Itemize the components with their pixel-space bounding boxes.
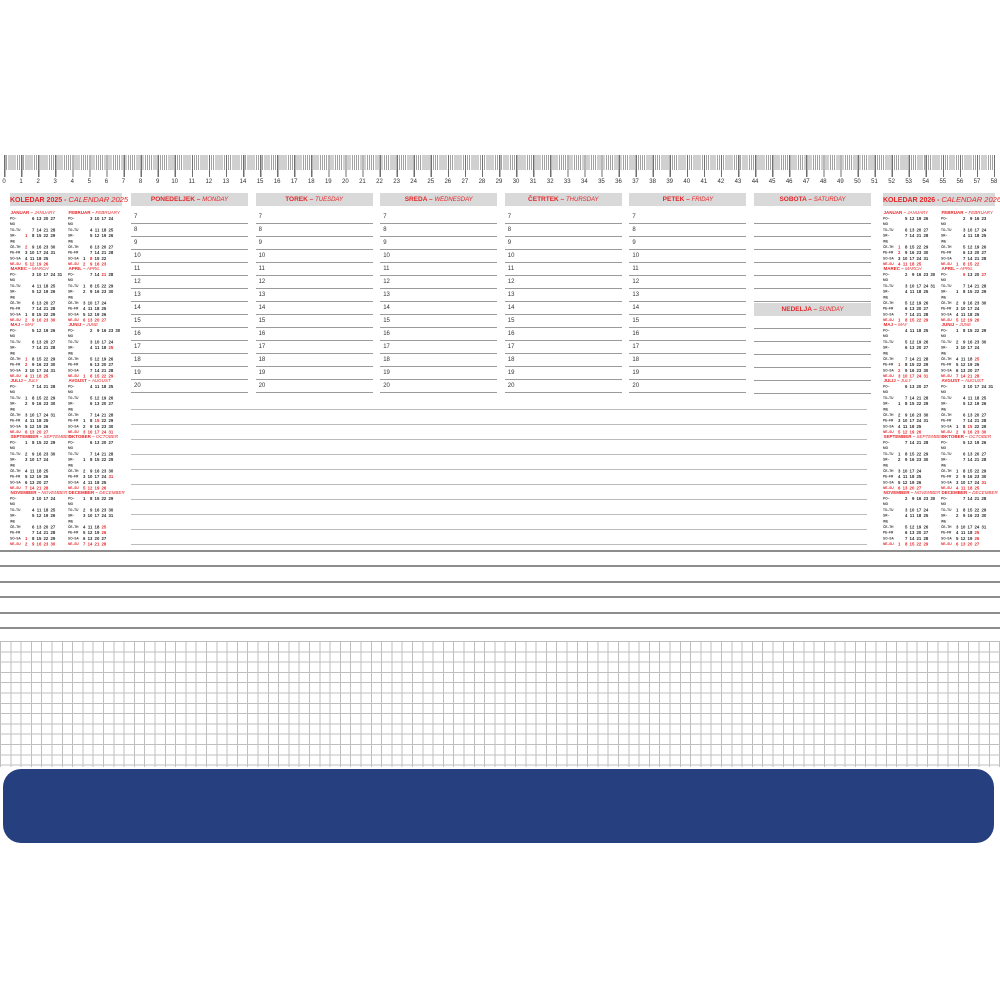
weekday-abbrev: PO–MO (941, 328, 952, 339)
mini-month: AVGUST – AUGUSTPO–MO310172431TO–TU411182… (941, 378, 995, 431)
full-width-lines-area (0, 550, 1000, 630)
blank-slot (754, 381, 871, 394)
date-cell: 29 (49, 233, 56, 244)
month-name-sl: JULIJ (884, 378, 896, 383)
date-cell: 16 (908, 457, 915, 468)
month-grid: PO–MO6132027TO–TU7142128SR–WE18152229ČE–… (68, 440, 122, 491)
hour-slot: 18 (256, 354, 373, 367)
date-cell: 26 (49, 513, 56, 524)
date-cell: 28 (49, 384, 56, 395)
weekday-abbrev: PO–MO (10, 216, 21, 227)
date-cell (21, 272, 28, 283)
hour-slot: 17 (505, 341, 622, 354)
date-cell (79, 233, 86, 244)
day-name-en: THURSDAY (566, 197, 599, 203)
month-name-en: JULY (901, 378, 912, 383)
date-cell (952, 233, 959, 244)
date-cell: 16 (35, 401, 42, 412)
date-cell (894, 216, 901, 227)
date-cell: 28 (980, 457, 987, 468)
date-cell: 7 (959, 496, 966, 507)
date-cell: 2 (79, 289, 86, 300)
date-cell: 7 (901, 440, 908, 451)
date-cell: 20 (915, 345, 922, 356)
date-cell: 8 (28, 233, 35, 244)
date-cell: 17 (973, 384, 980, 395)
month-grid: PO–MO29162330TO–TU310172431SR–WE4111825Č… (883, 272, 937, 323)
month-title: MAREC – MARCH (11, 266, 65, 271)
date-cell: 28 (49, 345, 56, 356)
date-cell: 7 (959, 457, 966, 468)
month-title: JULIJ – JULY (884, 378, 938, 383)
hour-slot: 20 (629, 380, 746, 393)
date-cell (987, 513, 994, 524)
date-cell (929, 345, 936, 356)
date-cell (929, 457, 936, 468)
date-cell: 23 (973, 513, 980, 524)
mini-month-inner: SEPTEMBER – SEPTEMBERPO–MO7142128TO–TU18… (883, 434, 937, 491)
date-cell: 12 (966, 440, 973, 451)
hour-slot: 10 (380, 250, 497, 263)
weekday-abbrev: SR–WE (10, 457, 21, 468)
wide-line (0, 612, 1000, 614)
mini-month-inner: APRIL – APRILPO–MO6132027TO–TU7142128SR–… (941, 266, 995, 323)
mini-month-inner: DECEMBER – DECEMBERPO–MO18152229TO–TU291… (68, 490, 122, 547)
mini-month-inner: OKTOBER – OCTOBERPO–MO5121926TO–TU613202… (941, 434, 995, 491)
date-cell (21, 328, 28, 339)
mini-month: MAJ – MAYPO–MO4111825TO–TU5121926SR–WE61… (883, 322, 937, 375)
desk-pad-calendar: 0123456789101112131415161718192021222324… (0, 0, 1000, 1000)
date-cell (929, 216, 936, 227)
date-cell (21, 513, 28, 524)
month-name-sl: MAREC (11, 266, 28, 271)
ruler-label: 3 (54, 179, 57, 185)
hour-slot: 11 (380, 263, 497, 276)
date-cell (114, 496, 121, 507)
mini-month: APRIL – APRILPO–MO6132027TO–TU7142128SR–… (941, 266, 995, 319)
date-cell (56, 216, 63, 227)
date-cell: 23 (922, 272, 929, 283)
weekday-abbrev: SR–WE (883, 345, 894, 356)
ruler-label: 49 (837, 179, 844, 185)
wide-line (0, 581, 1000, 583)
date-cell (114, 216, 121, 227)
month-title: MAJ – MAY (11, 322, 65, 327)
day-name-en: MONDAY (202, 197, 228, 203)
hour-slot: 15 (629, 315, 746, 328)
weekday-abbrev: SR–WE (883, 401, 894, 412)
year-title-en: CALENDAR 2025 (68, 195, 128, 204)
date-cell: 3 (28, 272, 35, 283)
day-header-dash: – (559, 196, 566, 203)
day-name-sl: ČETRTEK (528, 196, 559, 203)
weekly-planner: PONEDELJEK – MONDAY789101112131415161718… (131, 193, 871, 403)
date-cell: 25 (107, 345, 114, 356)
date-cell: 3 (86, 216, 93, 227)
month-grid: PO–MO3101724TO–TU4111825SR–WE5121926ČE–T… (68, 216, 122, 267)
hour-slots: 7891011121314151617181920 (629, 211, 746, 393)
ruler-label: 17 (291, 179, 298, 185)
ruler-label: 50 (854, 179, 861, 185)
hour-slot: 7 (380, 211, 497, 224)
mini-month: NOVEMBER – NOVEMBERPO–MO3101724TO–TU4111… (10, 490, 64, 543)
mini-month-inner: JANUAR – JANUARYPO–MO6132027TO–TU7142128… (10, 210, 64, 267)
date-cell: 18 (100, 384, 107, 395)
mini-month: MAREC – MARCHPO–MO29162330TO–TU310172431… (883, 266, 937, 319)
hour-slot: 17 (380, 341, 497, 354)
date-cell (21, 289, 28, 300)
blank-slot (754, 368, 871, 381)
date-cell (21, 216, 28, 227)
notes-lines-area (131, 403, 867, 553)
blue-footer-bar (3, 769, 994, 843)
date-cell: 24 (100, 513, 107, 524)
date-cell (114, 542, 121, 548)
date-cell: 30 (49, 401, 56, 412)
hour-slot: 12 (505, 276, 622, 289)
weekday-abbrev: SR–WE (68, 513, 79, 524)
date-cell: 25 (922, 328, 929, 339)
date-cell: 13 (93, 401, 100, 412)
date-cell (929, 513, 936, 524)
day-column-thursday: ČETRTEK – THURSDAY7891011121314151617181… (505, 193, 622, 393)
date-cell: 23 (42, 542, 49, 548)
day-column-wednesday: SREDA – WEDNESDAY78910111213141516171819… (380, 193, 497, 393)
date-cell (107, 542, 114, 548)
date-cell (114, 384, 121, 395)
date-cell: 21 (93, 542, 100, 548)
date-cell (929, 328, 936, 339)
date-cell (987, 401, 994, 412)
date-cell: 20 (100, 401, 107, 412)
date-cell: 3 (21, 457, 28, 468)
hour-slot: 10 (131, 250, 248, 263)
month-grid: PO–MO5121926TO–TU6132027SR–WE7142128ČE–T… (883, 216, 937, 267)
date-cell: 8 (86, 457, 93, 468)
squared-grid-area (0, 641, 1000, 767)
mini-month-inner: JUNIJ – JUNEPO–MO18152229TO–TU29162330SR… (941, 322, 995, 379)
date-cell: 16 (35, 542, 42, 548)
hour-slot: 8 (380, 224, 497, 237)
hour-slot: 13 (629, 289, 746, 302)
hour-slot: 13 (380, 289, 497, 302)
date-cell: 4 (901, 289, 908, 300)
mini-month-inner: AVGUST – AUGUSTPO–MO4111825TO–TU5121926S… (68, 378, 122, 435)
weekday-abbrev: SR–WE (10, 345, 21, 356)
month-grid: PO–MO310172431TO–TU4111825SR–WE5121926ČE… (941, 384, 995, 435)
date-cell (894, 440, 901, 451)
month-name-en: DECEMBER (99, 490, 125, 495)
weekday-abbrev: SR–WE (883, 289, 894, 300)
weekday-abbrev: SR–WE (10, 233, 21, 244)
day-header-sunday: NEDELJA – SUNDAY (754, 303, 871, 316)
month-name-en: MARCH (32, 266, 49, 271)
date-cell (56, 401, 63, 412)
date-cell: 29 (922, 401, 929, 412)
date-cell: 31 (56, 272, 63, 283)
ruler-label: 45 (769, 179, 776, 185)
month-name-en: JUNE (86, 322, 98, 327)
weekday-abbrev: SR–WE (10, 289, 21, 300)
month-title: APRIL – APRIL (942, 266, 996, 271)
month-grid: PO–MO6132027TO–TU7142128SR–WE18152229ČE–… (10, 216, 64, 267)
date-cell (987, 289, 994, 300)
month-title: NOVEMBER – NOVEMBER (884, 490, 938, 495)
date-cell (79, 272, 86, 283)
date-cell: 15 (908, 542, 915, 548)
hour-slot: 11 (256, 263, 373, 276)
month-name-sl: JUNIJ (69, 322, 82, 327)
ruler-label: 16 (274, 179, 281, 185)
weekday-abbrev: PO–MO (941, 216, 952, 227)
hour-slot: 18 (131, 354, 248, 367)
date-cell: 12 (35, 289, 42, 300)
blank-slot (754, 276, 871, 289)
month-name-sl: FEBRUAR (69, 210, 91, 215)
date-cell: 17 (966, 345, 973, 356)
month-name-sl: MAJ (11, 322, 21, 327)
ruler: 0123456789101112131415161718192021222324… (2, 155, 998, 189)
date-cell: 18 (915, 328, 922, 339)
date-cell (114, 440, 121, 451)
date-cell: 7 (901, 233, 908, 244)
date-cell: 18 (915, 513, 922, 524)
date-cell: 1 (894, 401, 901, 412)
month-grid: PO–MO4111825TO–TU5121926SR–WE6132027ČE–T… (883, 328, 937, 379)
month-name-en: OCTOBER (96, 434, 118, 439)
date-cell: 8 (901, 401, 908, 412)
date-cell (114, 289, 121, 300)
date-cell: 6 (28, 216, 35, 227)
date-cell: 3 (959, 384, 966, 395)
hour-slot: 10 (629, 250, 746, 263)
mini-month-inner: JULIJ – JULYPO–MO7142128TO–TU18152229SR–… (10, 378, 64, 435)
month-title: SEPTEMBER – SEPTEMBER (11, 434, 65, 439)
ruler-label: 9 (156, 179, 159, 185)
weekday-abbrev: PO–MO (68, 328, 79, 339)
date-cell (56, 289, 63, 300)
date-cell: 22 (915, 542, 922, 548)
hour-slot: 18 (380, 354, 497, 367)
weekday-abbrev: NE–SU (941, 542, 952, 548)
date-cell (56, 345, 63, 356)
mini-month-inner: SEPTEMBER – SEPTEMBERPO–MO18152229TO–TU2… (10, 434, 64, 491)
ruler-label: 5 (88, 179, 91, 185)
month-grid: PO–MO5121926TO–TU6132027SR–WE7142128ČE–T… (941, 440, 995, 491)
month-name-en: MARCH (905, 266, 922, 271)
blank-slot (754, 211, 871, 224)
date-cell: 20 (973, 272, 980, 283)
weekday-abbrev: SR–WE (883, 233, 894, 244)
mini-month-inner: MAREC – MARCHPO–MO29162330TO–TU310172431… (883, 266, 937, 323)
date-cell: 10 (35, 496, 42, 507)
ruler-label: 24 (410, 179, 417, 185)
weekday-abbrev: PO–MO (68, 440, 79, 451)
date-cell: 7 (79, 542, 86, 548)
date-cell: 22 (973, 328, 980, 339)
hour-slot: 8 (505, 224, 622, 237)
date-cell: 10 (35, 272, 42, 283)
date-cell: 29 (980, 289, 987, 300)
hour-slot: 8 (629, 224, 746, 237)
weekday-abbrev: SR–WE (941, 345, 952, 356)
blank-slot (754, 250, 871, 263)
date-cell: 29 (49, 440, 56, 451)
date-cell: 14 (908, 440, 915, 451)
date-cell: 20 (966, 542, 973, 548)
date-cell: 26 (922, 216, 929, 227)
mini-month: JULIJ – JULYPO–MO6132027TO–TU7142128SR–W… (883, 378, 937, 431)
hour-slot: 14 (256, 302, 373, 315)
ruler-label: 22 (376, 179, 383, 185)
hour-slot: 19 (256, 367, 373, 380)
hour-slot: 17 (629, 341, 746, 354)
date-cell: 9 (28, 401, 35, 412)
month-name-sl: NOVEMBER (11, 490, 37, 495)
date-cell (929, 384, 936, 395)
month-name-sl: APRIL (69, 266, 82, 271)
date-cell (987, 328, 994, 339)
weekday-abbrev: PO–MO (883, 384, 894, 395)
hour-slot: 9 (380, 237, 497, 250)
date-cell: 29 (922, 542, 929, 548)
date-cell: 6 (959, 272, 966, 283)
month-title: AVGUST – AUGUST (69, 378, 123, 383)
date-cell (56, 384, 63, 395)
date-cell: 10 (28, 457, 35, 468)
day-name-sl: PETEK (663, 196, 685, 203)
month-name-en: APRIL (960, 266, 973, 271)
mini-month-inner: MAJ – MAYPO–MO5121926TO–TU6132027SR–WE71… (10, 322, 64, 379)
ruler-label: 33 (564, 179, 571, 185)
date-cell: 24 (42, 457, 49, 468)
month-name-sl: OKTOBER (69, 434, 91, 439)
date-cell (894, 272, 901, 283)
date-cell: 3 (79, 513, 86, 524)
hour-slot: 11 (131, 263, 248, 276)
date-cell: 15 (93, 457, 100, 468)
hour-slot: 15 (505, 315, 622, 328)
ruler-label: 32 (547, 179, 554, 185)
date-cell (21, 496, 28, 507)
day-header-wednesday: SREDA – WEDNESDAY (380, 193, 497, 206)
date-cell: 13 (966, 272, 973, 283)
date-cell (79, 401, 86, 412)
weekday-abbrev: PO–MO (883, 272, 894, 283)
date-cell: 9 (966, 216, 973, 227)
ruler-label: 51 (871, 179, 878, 185)
date-cell: 4 (86, 384, 93, 395)
month-grid: PO–MO29162330TO–TU3101724SR–WE4111825ČE–… (883, 496, 937, 547)
month-title: OKTOBER – OCTOBER (942, 434, 996, 439)
weekday-abbrev: PO–MO (68, 384, 79, 395)
weekday-abbrev: SR–WE (10, 401, 21, 412)
weekday-abbrev: PO–MO (68, 496, 79, 507)
month-grid: PO–MO5121926TO–TU6132027SR–WE7142128ČE–T… (10, 328, 64, 379)
blank-slot (754, 224, 871, 237)
date-cell (114, 513, 121, 524)
month-title: APRIL – APRIL (69, 266, 123, 271)
date-cell: 30 (107, 289, 114, 300)
date-cell: 25 (922, 289, 929, 300)
year-title-sl: KOLEDAR 2025 (10, 197, 62, 204)
date-cell: 29 (107, 496, 114, 507)
hour-slot: 15 (256, 315, 373, 328)
date-cell: 28 (107, 272, 114, 283)
day-name-sl: TOREK (285, 196, 308, 203)
mini-month: JANUAR – JANUARYPO–MO6132027TO–TU7142128… (10, 210, 64, 263)
date-cell: 16 (915, 496, 922, 507)
ruler-label: 57 (974, 179, 981, 185)
day-column-weekend: SOBOTA – SATURDAYNEDELJA – SUNDAY (754, 193, 871, 394)
date-cell (987, 272, 994, 283)
month-grid: PO–MO7142128TO–TU18152229SR–WE29162330ČE… (10, 384, 64, 435)
month-grid: PO–MO18152229TO–TU29162330SR–WE3101724ČE… (10, 440, 64, 491)
mini-month: NOVEMBER – NOVEMBERPO–MO29162330TO–TU310… (883, 490, 937, 543)
date-cell: 24 (107, 216, 114, 227)
weekday-abbrev: PO–MO (68, 216, 79, 227)
date-cell: 1 (79, 496, 86, 507)
mini-month: MAREC – MARCHPO–MO310172431TO–TU4111825S… (10, 266, 64, 319)
ruler-label: 20 (342, 179, 349, 185)
month-name-en: MAY (898, 322, 907, 327)
note-line (131, 439, 867, 440)
note-line (131, 424, 867, 425)
date-cell: 30 (980, 513, 987, 524)
date-cell: 16 (966, 513, 973, 524)
date-cell (114, 272, 121, 283)
month-name-en: JANUARY (907, 210, 928, 215)
date-cell: 5 (959, 401, 966, 412)
hour-slot: 13 (256, 289, 373, 302)
month-title: JANUAR – JANUARY (11, 210, 65, 215)
month-grid: PO–MO6132027TO–TU7142128SR–WE18152229ČE–… (941, 272, 995, 323)
date-cell: 19 (42, 513, 49, 524)
mini-month: FEBRUAR – FEBRUARYPO–MO3101724TO–TU41118… (68, 210, 122, 263)
date-cell: 17 (100, 216, 107, 227)
date-cell: 23 (980, 216, 987, 227)
date-cell (952, 384, 959, 395)
hour-slot: 19 (131, 367, 248, 380)
ruler-label: 56 (957, 179, 964, 185)
date-cell (114, 457, 121, 468)
day-name-en: WEDNESDAY (434, 197, 472, 203)
date-cell: 9 (908, 496, 915, 507)
weekday-abbrev: NE–SU (883, 542, 894, 548)
date-cell: 3 (28, 496, 35, 507)
month-name-sl: SEPTEMBER (11, 434, 39, 439)
date-cell (114, 401, 121, 412)
mini-month: MAJ – MAYPO–MO5121926TO–TU6132027SR–WE71… (10, 322, 64, 375)
month-name-sl: FEBRUAR (942, 210, 964, 215)
month-name-sl: OKTOBER (942, 434, 964, 439)
date-cell: 19 (100, 233, 107, 244)
date-cell: 30 (114, 328, 121, 339)
date-cell (79, 216, 86, 227)
ruler-label: 28 (479, 179, 486, 185)
date-cell (987, 542, 994, 548)
date-cell: 27 (973, 542, 980, 548)
date-cell: 4 (959, 233, 966, 244)
month-name-sl: JANUAR (884, 210, 903, 215)
hour-slot: 18 (629, 354, 746, 367)
date-cell: 6 (901, 345, 908, 356)
date-cell: 6 (952, 542, 959, 548)
date-cell: 30 (49, 542, 56, 548)
date-cell: 17 (35, 457, 42, 468)
date-cell: 5 (28, 513, 35, 524)
mini-month-inner: OKTOBER – OCTOBERPO–MO6132027TO–TU714212… (68, 434, 122, 491)
